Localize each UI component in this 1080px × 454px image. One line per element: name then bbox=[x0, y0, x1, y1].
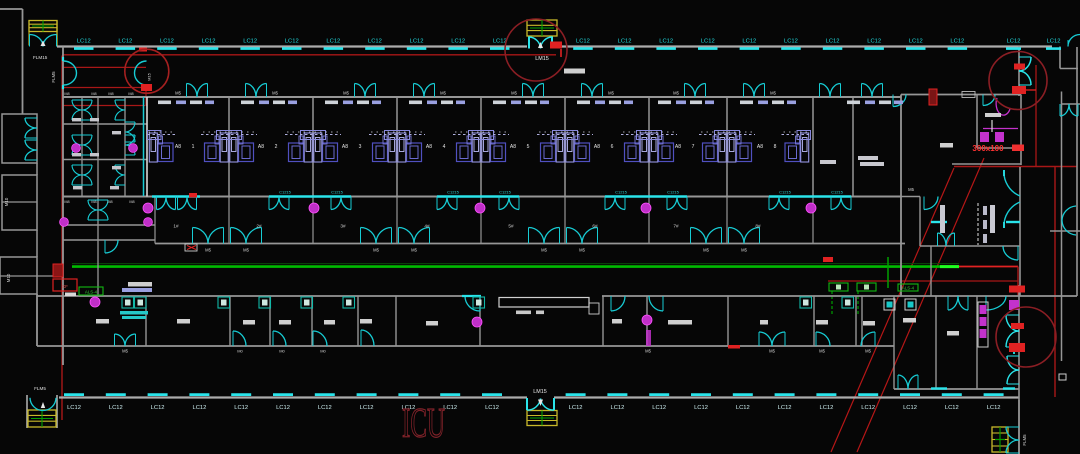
svg-text:M8: M8 bbox=[107, 200, 112, 204]
svg-text:LC12: LC12 bbox=[285, 39, 299, 45]
svg-text:7#: 7# bbox=[673, 224, 679, 230]
svg-text:LC12: LC12 bbox=[234, 405, 248, 411]
svg-text:M8: M8 bbox=[64, 200, 69, 204]
svg-text:M5: M5 bbox=[440, 91, 446, 96]
svg-text:LC12: LC12 bbox=[1007, 39, 1021, 45]
svg-text:M5: M5 bbox=[541, 248, 547, 253]
svg-text:C1215: C1215 bbox=[615, 190, 628, 195]
svg-text:6#: 6# bbox=[592, 224, 598, 230]
svg-text:LC12: LC12 bbox=[109, 405, 123, 411]
svg-text:LC12: LC12 bbox=[701, 39, 715, 45]
svg-text:LC12: LC12 bbox=[326, 39, 340, 45]
svg-text:M8: M8 bbox=[128, 92, 133, 96]
svg-text:1#: 1# bbox=[173, 224, 179, 230]
svg-text:8#: 8# bbox=[755, 224, 761, 230]
svg-text:7: 7 bbox=[692, 144, 695, 150]
svg-text:A8: A8 bbox=[594, 144, 600, 150]
svg-text:LC12: LC12 bbox=[736, 405, 750, 411]
svg-text:C1215: C1215 bbox=[279, 190, 292, 195]
svg-text:A8: A8 bbox=[258, 144, 264, 150]
svg-text:M5: M5 bbox=[703, 248, 709, 253]
svg-text:A8: A8 bbox=[510, 144, 516, 150]
svg-text:LM15: LM15 bbox=[535, 56, 549, 62]
svg-text:LC12: LC12 bbox=[410, 39, 424, 45]
svg-text:C1215: C1215 bbox=[447, 190, 460, 195]
svg-text:5#: 5# bbox=[508, 224, 514, 230]
svg-text:LC12: LC12 bbox=[77, 39, 91, 45]
svg-text:M0: M0 bbox=[237, 349, 243, 354]
svg-text:M5: M5 bbox=[243, 248, 249, 253]
svg-text:3#: 3# bbox=[340, 224, 346, 230]
svg-text:A8: A8 bbox=[757, 144, 763, 150]
svg-text:LC12: LC12 bbox=[360, 405, 374, 411]
svg-text:M5: M5 bbox=[608, 91, 614, 96]
svg-text:2: 2 bbox=[275, 144, 278, 150]
svg-text:LC12: LC12 bbox=[160, 39, 174, 45]
svg-text:M8: M8 bbox=[91, 200, 96, 204]
svg-text:M8: M8 bbox=[64, 92, 69, 96]
svg-text:LC12: LC12 bbox=[861, 405, 875, 411]
svg-text:4: 4 bbox=[443, 144, 446, 150]
svg-text:M0: M0 bbox=[279, 349, 285, 354]
svg-text:LC12: LC12 bbox=[659, 39, 673, 45]
svg-text:M5: M5 bbox=[673, 91, 679, 96]
svg-text:LC12: LC12 bbox=[493, 39, 507, 45]
svg-text:M15: M15 bbox=[147, 72, 152, 81]
svg-text:LC12: LC12 bbox=[276, 405, 290, 411]
svg-text:C1215: C1215 bbox=[779, 190, 792, 195]
svg-text:A8: A8 bbox=[175, 144, 181, 150]
svg-text:M5: M5 bbox=[819, 349, 825, 354]
svg-text:LC12: LC12 bbox=[909, 39, 923, 45]
svg-text:LC12: LC12 bbox=[987, 405, 1001, 411]
svg-text:M5: M5 bbox=[741, 248, 747, 253]
svg-text:M5: M5 bbox=[908, 187, 914, 192]
svg-text:LC12: LC12 bbox=[576, 39, 590, 45]
svg-text:2#: 2# bbox=[256, 224, 262, 230]
svg-text:FLM5: FLM5 bbox=[34, 386, 46, 391]
svg-text:LC12: LC12 bbox=[368, 39, 382, 45]
svg-text:M5: M5 bbox=[272, 91, 278, 96]
svg-text:ALS-4: ALS-4 bbox=[902, 286, 915, 291]
svg-text:LC12: LC12 bbox=[67, 405, 81, 411]
svg-text:C1215: C1215 bbox=[499, 190, 512, 195]
svg-text:LC12: LC12 bbox=[950, 39, 964, 45]
svg-text:M5: M5 bbox=[511, 91, 517, 96]
svg-text:LC12: LC12 bbox=[243, 39, 257, 45]
svg-text:8: 8 bbox=[774, 144, 777, 150]
svg-text:C1215: C1215 bbox=[831, 190, 844, 195]
svg-text:1: 1 bbox=[192, 144, 195, 150]
svg-text:LC12: LC12 bbox=[318, 405, 332, 411]
svg-text:LC12: LC12 bbox=[569, 405, 583, 411]
svg-text:M8: M8 bbox=[129, 200, 134, 204]
svg-text:LC12: LC12 bbox=[202, 39, 216, 45]
svg-text:FLM15: FLM15 bbox=[33, 55, 48, 60]
svg-text:M10: M10 bbox=[4, 197, 9, 206]
svg-text:LC12: LC12 bbox=[151, 405, 165, 411]
svg-text:A8: A8 bbox=[426, 144, 432, 150]
svg-text:M5: M5 bbox=[122, 349, 128, 354]
svg-text:M5: M5 bbox=[175, 91, 181, 96]
svg-text:LC12: LC12 bbox=[742, 39, 756, 45]
svg-text:M0: M0 bbox=[320, 349, 326, 354]
svg-text:LC12: LC12 bbox=[610, 405, 624, 411]
svg-text:M8: M8 bbox=[108, 92, 113, 96]
svg-text:LM15: LM15 bbox=[533, 389, 547, 395]
svg-text:C1215: C1215 bbox=[331, 190, 344, 195]
svg-text:M5: M5 bbox=[205, 248, 211, 253]
svg-text:LC12: LC12 bbox=[485, 405, 499, 411]
svg-text:A8: A8 bbox=[675, 144, 681, 150]
svg-text:C1215: C1215 bbox=[667, 190, 680, 195]
svg-text:M5: M5 bbox=[769, 349, 775, 354]
svg-text:LC12: LC12 bbox=[694, 405, 708, 411]
svg-text:M5: M5 bbox=[343, 91, 349, 96]
svg-text:LC12: LC12 bbox=[443, 405, 457, 411]
svg-text:FLM5: FLM5 bbox=[1022, 434, 1027, 446]
svg-text:LC12: LC12 bbox=[903, 405, 917, 411]
svg-text:LC12: LC12 bbox=[945, 405, 959, 411]
svg-text:300x100: 300x100 bbox=[972, 144, 1004, 153]
svg-text:M5: M5 bbox=[770, 91, 776, 96]
svg-text:LC12: LC12 bbox=[819, 405, 833, 411]
svg-text:ALS-4: ALS-4 bbox=[85, 290, 98, 295]
svg-text:M5: M5 bbox=[373, 248, 379, 253]
svg-text:6: 6 bbox=[611, 144, 614, 150]
svg-text:M8: M8 bbox=[91, 92, 96, 96]
svg-text:M5: M5 bbox=[411, 248, 417, 253]
svg-text:LC12: LC12 bbox=[192, 405, 206, 411]
svg-text:3: 3 bbox=[359, 144, 362, 150]
svg-text:ICU: ICU bbox=[402, 401, 445, 447]
svg-text:LC12: LC12 bbox=[118, 39, 132, 45]
svg-text:LC12: LC12 bbox=[826, 39, 840, 45]
svg-text:XF: XF bbox=[62, 284, 68, 289]
svg-text:M5: M5 bbox=[645, 349, 651, 354]
svg-text:5: 5 bbox=[527, 144, 530, 150]
svg-text:A8: A8 bbox=[342, 144, 348, 150]
svg-text:LC12: LC12 bbox=[652, 405, 666, 411]
svg-text:FLM5: FLM5 bbox=[51, 71, 56, 83]
svg-text:LC12: LC12 bbox=[1047, 39, 1061, 45]
svg-text:M5: M5 bbox=[579, 248, 585, 253]
svg-text:LC12: LC12 bbox=[778, 405, 792, 411]
svg-text:M10: M10 bbox=[6, 273, 11, 282]
svg-text:M5: M5 bbox=[865, 349, 871, 354]
svg-text:LC12: LC12 bbox=[618, 39, 632, 45]
svg-text:4#: 4# bbox=[424, 224, 430, 230]
svg-text:LC12: LC12 bbox=[867, 39, 881, 45]
svg-text:LC12: LC12 bbox=[451, 39, 465, 45]
svg-text:LC12: LC12 bbox=[784, 39, 798, 45]
